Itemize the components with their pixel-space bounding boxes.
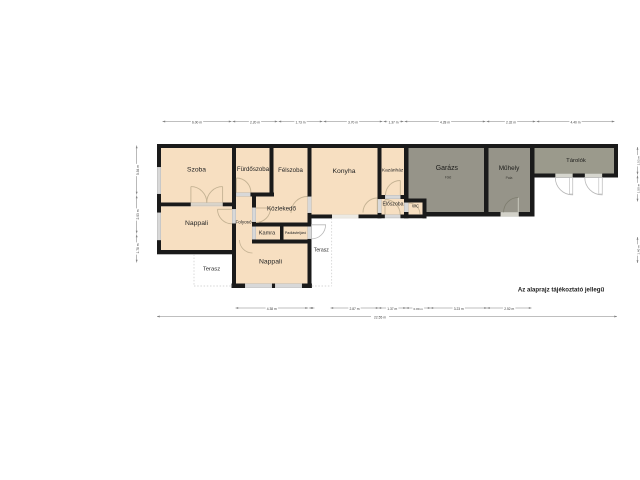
svg-text:Előszoba: Előszoba [383,202,404,208]
svg-text:Szoba: Szoba [187,166,206,173]
svg-text:2.03 m: 2.03 m [136,209,140,219]
svg-text:6.00 m: 6.00 m [192,121,202,125]
svg-text:Konyha: Konyha [332,168,355,175]
svg-text:Az alaprajz tájékoztató jelleg: Az alaprajz tájékoztató jellegű [518,287,605,294]
svg-text:2.52 m: 2.52 m [504,307,514,311]
svg-text:Pala: Pala [506,176,513,180]
svg-text:3.70 m: 3.70 m [348,121,358,125]
svg-text:2.87 m: 2.87 m [349,307,359,311]
svg-text:1.78 m: 1.78 m [136,243,140,253]
svg-text:Folyosó: Folyosó [235,220,252,225]
svg-text:Garázs: Garázs [436,165,459,172]
svg-text:Nappali: Nappali [185,220,209,227]
svg-text:1.73 m: 1.73 m [295,121,305,125]
svg-text:Félszoba: Félszoba [278,167,303,174]
svg-text:1.37 m: 1.37 m [388,121,398,125]
svg-text:2.20 m: 2.20 m [250,121,260,125]
svg-text:3.23 m: 3.23 m [454,307,464,311]
svg-text:Föld: Föld [445,175,452,179]
svg-text:Nappali: Nappali [259,258,283,265]
svg-text:1.53 m: 1.53 m [637,156,640,166]
svg-text:Műhely: Műhely [499,165,520,172]
svg-text:WC: WC [412,203,419,208]
svg-text:4.38 m: 4.38 m [267,307,277,311]
svg-text:0.89 m: 0.89 m [414,307,424,311]
svg-text:Padlásfeljáró: Padlásfeljáró [285,231,306,235]
svg-text:Terasz: Terasz [314,248,329,254]
svg-text:1.37 m: 1.37 m [387,307,397,311]
svg-text:22.55 m: 22.55 m [374,316,386,320]
svg-text:Fürdőszoba: Fürdőszoba [237,166,270,173]
svg-text:5.94 m: 5.94 m [136,165,140,175]
svg-text:Közlekedő: Közlekedő [267,206,296,213]
svg-text:1.40 m: 1.40 m [637,245,640,255]
svg-text:2.32 m: 2.32 m [506,121,516,125]
svg-text:Terasz: Terasz [203,267,220,273]
svg-text:Kazánház: Kazánház [382,167,404,173]
svg-text:1.50 m: 1.50 m [637,183,640,193]
svg-text:Kamra: Kamra [259,230,276,236]
svg-text:Tárolók: Tárolók [566,158,586,164]
svg-text:4.40 m: 4.40 m [570,121,580,125]
svg-text:4.28 m: 4.28 m [440,121,450,125]
